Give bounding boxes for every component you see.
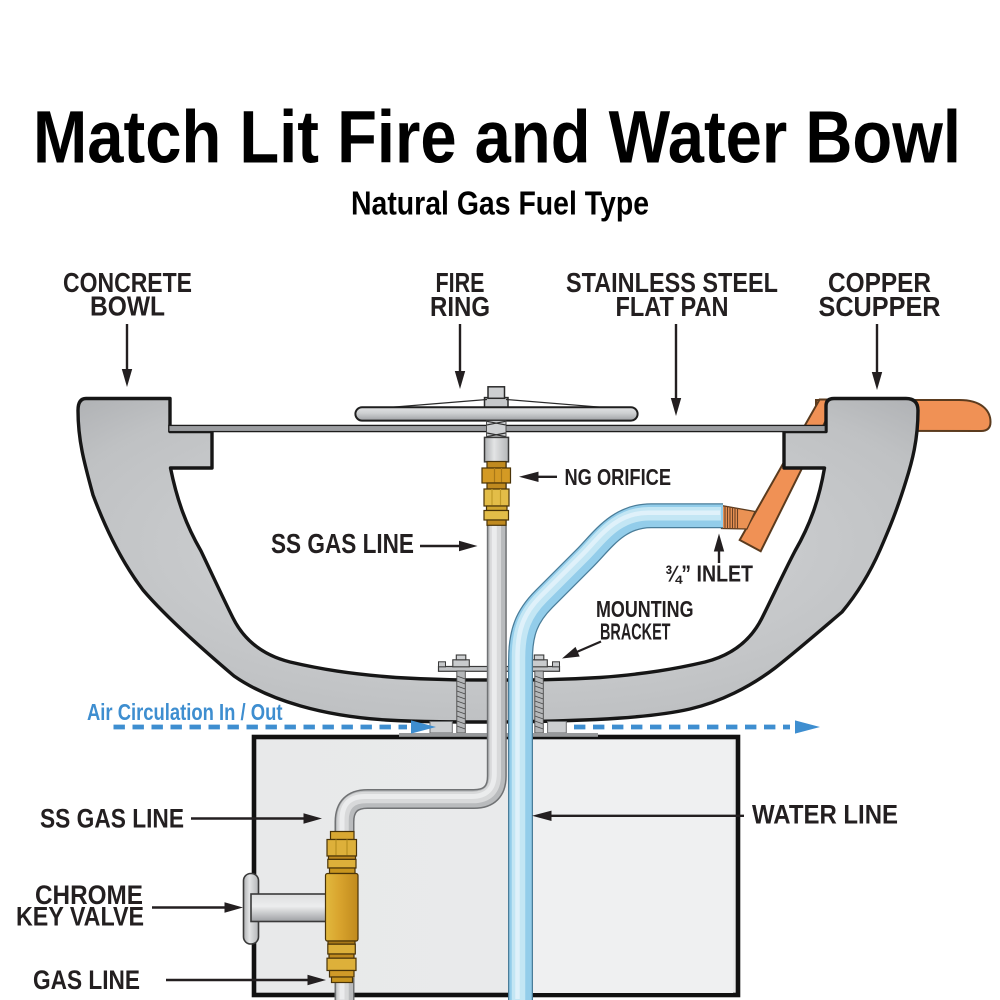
svg-text:SCUPPER: SCUPPER <box>819 291 941 322</box>
svg-text:WATER LINE: WATER LINE <box>752 800 898 830</box>
svg-text:BRACKET: BRACKET <box>600 619 671 645</box>
svg-text:FLAT PAN: FLAT PAN <box>616 291 729 322</box>
svg-text:Match Lit Fire and Water Bowl: Match Lit Fire and Water Bowl <box>33 96 961 179</box>
svg-text:NG ORIFICE: NG ORIFICE <box>565 464 672 490</box>
svg-text:RING: RING <box>430 291 490 322</box>
svg-text:¾” INLET: ¾” INLET <box>665 561 753 587</box>
svg-text:SS GAS LINE: SS GAS LINE <box>271 528 414 559</box>
svg-text:BOWL: BOWL <box>90 291 165 322</box>
svg-text:GAS LINE: GAS LINE <box>33 965 140 995</box>
svg-text:Air Circulation In / Out: Air Circulation In / Out <box>87 699 283 725</box>
svg-text:KEY VALVE: KEY VALVE <box>16 902 144 932</box>
svg-text:SS GAS LINE: SS GAS LINE <box>40 804 184 834</box>
svg-text:Natural Gas Fuel Type: Natural Gas Fuel Type <box>351 185 649 222</box>
